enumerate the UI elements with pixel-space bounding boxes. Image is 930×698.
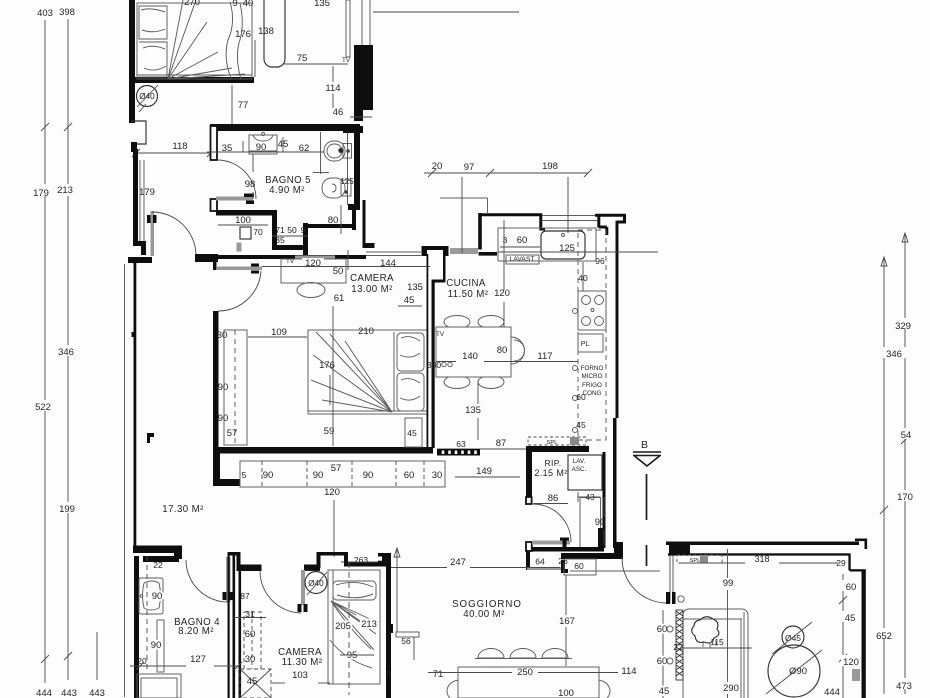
svg-text:5: 5 bbox=[242, 470, 247, 480]
svg-text:45: 45 bbox=[845, 613, 856, 624]
svg-text:100: 100 bbox=[558, 688, 574, 698]
svg-text:125: 125 bbox=[340, 177, 354, 186]
svg-text:4.90 M²: 4.90 M² bbox=[269, 185, 305, 196]
svg-text:176: 176 bbox=[319, 360, 335, 371]
svg-text:270: 270 bbox=[184, 0, 200, 8]
svg-text:90: 90 bbox=[263, 470, 274, 481]
svg-text:90: 90 bbox=[313, 470, 324, 481]
svg-text:90: 90 bbox=[256, 142, 267, 153]
svg-text:LAV.: LAV. bbox=[573, 458, 586, 465]
svg-text:LAVAST: LAVAST bbox=[509, 256, 534, 263]
svg-text:59: 59 bbox=[324, 426, 335, 437]
svg-text:CAMERA: CAMERA bbox=[350, 273, 394, 284]
svg-text:403: 403 bbox=[37, 8, 53, 19]
svg-text:71: 71 bbox=[433, 669, 444, 680]
svg-text:179: 179 bbox=[139, 187, 155, 198]
svg-text:TV: TV bbox=[342, 57, 351, 64]
svg-text:90: 90 bbox=[151, 640, 162, 651]
svg-text:11.50 M²: 11.50 M² bbox=[448, 289, 489, 300]
svg-text:199: 199 bbox=[59, 504, 75, 515]
svg-text:17.30 M²: 17.30 M² bbox=[162, 504, 204, 515]
svg-text:60: 60 bbox=[517, 235, 528, 246]
svg-text:205: 205 bbox=[335, 621, 351, 632]
svg-text:56: 56 bbox=[401, 636, 411, 646]
svg-text:444: 444 bbox=[36, 688, 52, 698]
svg-text:100: 100 bbox=[235, 215, 251, 226]
svg-text:70: 70 bbox=[253, 227, 263, 237]
svg-text:40.00 M²: 40.00 M² bbox=[463, 609, 505, 620]
svg-text:45: 45 bbox=[247, 676, 258, 687]
svg-text:90: 90 bbox=[218, 413, 229, 424]
svg-text:443: 443 bbox=[89, 688, 105, 698]
svg-text:398: 398 bbox=[59, 7, 75, 18]
svg-text:FRIGO: FRIGO bbox=[582, 382, 602, 389]
svg-text:60: 60 bbox=[657, 624, 668, 635]
svg-text:90: 90 bbox=[218, 382, 229, 393]
svg-text:Ø40: Ø40 bbox=[308, 579, 324, 588]
svg-text:9: 9 bbox=[301, 225, 306, 235]
svg-text:SPL: SPL bbox=[547, 440, 559, 446]
svg-text:443: 443 bbox=[61, 688, 77, 698]
svg-text:50: 50 bbox=[287, 225, 297, 235]
svg-text:127: 127 bbox=[190, 654, 206, 665]
svg-text:167: 167 bbox=[559, 616, 575, 627]
svg-text:61: 61 bbox=[334, 293, 345, 304]
svg-text:RIP.: RIP. bbox=[544, 458, 561, 468]
svg-text:45: 45 bbox=[576, 420, 586, 430]
svg-text:35: 35 bbox=[275, 235, 285, 245]
svg-text:63: 63 bbox=[456, 439, 466, 449]
svg-text:80: 80 bbox=[497, 345, 508, 356]
svg-text:144: 144 bbox=[380, 258, 396, 269]
svg-text:329: 329 bbox=[895, 321, 911, 332]
svg-text:98: 98 bbox=[245, 179, 256, 190]
svg-text:77: 77 bbox=[238, 100, 249, 111]
svg-text:ASC.: ASC. bbox=[572, 466, 587, 473]
svg-text:80: 80 bbox=[328, 215, 339, 226]
svg-text:57: 57 bbox=[331, 463, 342, 474]
svg-text:40: 40 bbox=[243, 0, 254, 9]
svg-text:135: 135 bbox=[465, 405, 481, 416]
svg-text:CUCINA: CUCINA bbox=[446, 278, 486, 289]
svg-text:71: 71 bbox=[275, 225, 285, 235]
svg-text:50: 50 bbox=[333, 266, 344, 277]
svg-text:MICRO: MICRO bbox=[582, 373, 603, 380]
svg-text:290: 290 bbox=[723, 683, 739, 694]
svg-text:30: 30 bbox=[432, 470, 443, 481]
svg-text:87: 87 bbox=[496, 438, 507, 449]
svg-text:45: 45 bbox=[404, 295, 415, 306]
svg-text:247: 247 bbox=[450, 557, 466, 568]
svg-text:210: 210 bbox=[358, 326, 374, 337]
svg-text:60: 60 bbox=[404, 470, 415, 481]
svg-text:90: 90 bbox=[363, 470, 374, 481]
svg-text:87: 87 bbox=[240, 591, 250, 601]
svg-text:20: 20 bbox=[432, 161, 443, 172]
svg-text:149: 149 bbox=[476, 466, 492, 477]
svg-text:5: 5 bbox=[387, 671, 391, 678]
svg-text:179: 179 bbox=[33, 188, 49, 199]
svg-text:652: 652 bbox=[876, 631, 892, 642]
svg-text:3: 3 bbox=[503, 235, 508, 245]
svg-text:90: 90 bbox=[595, 517, 606, 528]
svg-text:346: 346 bbox=[886, 349, 902, 360]
svg-text:135: 135 bbox=[314, 0, 330, 9]
svg-text:11.30 M²: 11.30 M² bbox=[282, 657, 323, 668]
svg-text:140: 140 bbox=[462, 351, 478, 362]
svg-text:138: 138 bbox=[258, 26, 274, 37]
svg-text:114: 114 bbox=[325, 83, 340, 94]
svg-text:60: 60 bbox=[657, 656, 668, 667]
svg-text:96: 96 bbox=[595, 256, 605, 266]
svg-text:120: 120 bbox=[305, 258, 321, 269]
svg-text:54: 54 bbox=[901, 430, 912, 441]
svg-text:8.20 M²: 8.20 M² bbox=[178, 626, 214, 637]
svg-text:473: 473 bbox=[896, 681, 912, 692]
svg-text:444: 444 bbox=[824, 687, 840, 698]
svg-text:522: 522 bbox=[35, 402, 51, 413]
svg-text:22: 22 bbox=[673, 642, 683, 652]
svg-text:13.00 M²: 13.00 M² bbox=[351, 284, 393, 295]
svg-text:117: 117 bbox=[537, 351, 552, 362]
svg-text:115: 115 bbox=[710, 637, 724, 647]
svg-text:60: 60 bbox=[245, 629, 256, 640]
svg-text:198: 198 bbox=[542, 161, 558, 172]
svg-text:120: 120 bbox=[324, 487, 340, 498]
svg-text:250: 250 bbox=[517, 667, 533, 678]
svg-text:22: 22 bbox=[153, 560, 163, 570]
svg-text:FORNO: FORNO bbox=[581, 365, 604, 372]
svg-text:118: 118 bbox=[172, 141, 187, 152]
svg-text:Ø90: Ø90 bbox=[789, 666, 807, 677]
svg-text:170: 170 bbox=[897, 492, 913, 503]
svg-text:2.15 M²: 2.15 M² bbox=[534, 468, 567, 478]
svg-text:PL: PL bbox=[581, 341, 590, 348]
svg-text:346: 346 bbox=[58, 347, 74, 358]
svg-text:30: 30 bbox=[245, 654, 256, 665]
svg-text:97: 97 bbox=[464, 162, 475, 173]
svg-text:109: 109 bbox=[271, 327, 287, 338]
svg-text:46: 46 bbox=[333, 107, 344, 118]
svg-text:64: 64 bbox=[535, 557, 545, 567]
svg-text:99: 99 bbox=[723, 578, 734, 589]
svg-text:B: B bbox=[641, 439, 648, 451]
svg-text:75: 75 bbox=[297, 53, 308, 64]
svg-text:45: 45 bbox=[407, 428, 417, 438]
svg-text:45: 45 bbox=[659, 686, 670, 697]
svg-text:90: 90 bbox=[152, 591, 163, 602]
svg-text:120: 120 bbox=[843, 657, 859, 668]
svg-text:120: 120 bbox=[494, 288, 510, 299]
svg-text:57: 57 bbox=[227, 428, 238, 439]
svg-text:26: 26 bbox=[558, 556, 568, 566]
svg-text:213: 213 bbox=[57, 185, 73, 196]
svg-text:TV: TV bbox=[436, 331, 445, 338]
svg-text:135: 135 bbox=[407, 282, 423, 293]
svg-text:60: 60 bbox=[576, 392, 586, 402]
svg-text:318: 318 bbox=[754, 554, 769, 564]
svg-text:103: 103 bbox=[292, 670, 308, 681]
svg-text:300: 300 bbox=[427, 360, 441, 370]
svg-text:213: 213 bbox=[361, 619, 377, 630]
svg-text:176: 176 bbox=[235, 29, 251, 40]
svg-text:86: 86 bbox=[548, 493, 559, 504]
svg-text:114: 114 bbox=[621, 666, 636, 677]
svg-text:95: 95 bbox=[347, 650, 358, 661]
svg-text:60: 60 bbox=[574, 561, 584, 571]
svg-text:30: 30 bbox=[217, 330, 228, 341]
svg-text:60: 60 bbox=[846, 582, 857, 593]
svg-text:9: 9 bbox=[232, 0, 237, 9]
svg-text:29: 29 bbox=[836, 558, 846, 568]
